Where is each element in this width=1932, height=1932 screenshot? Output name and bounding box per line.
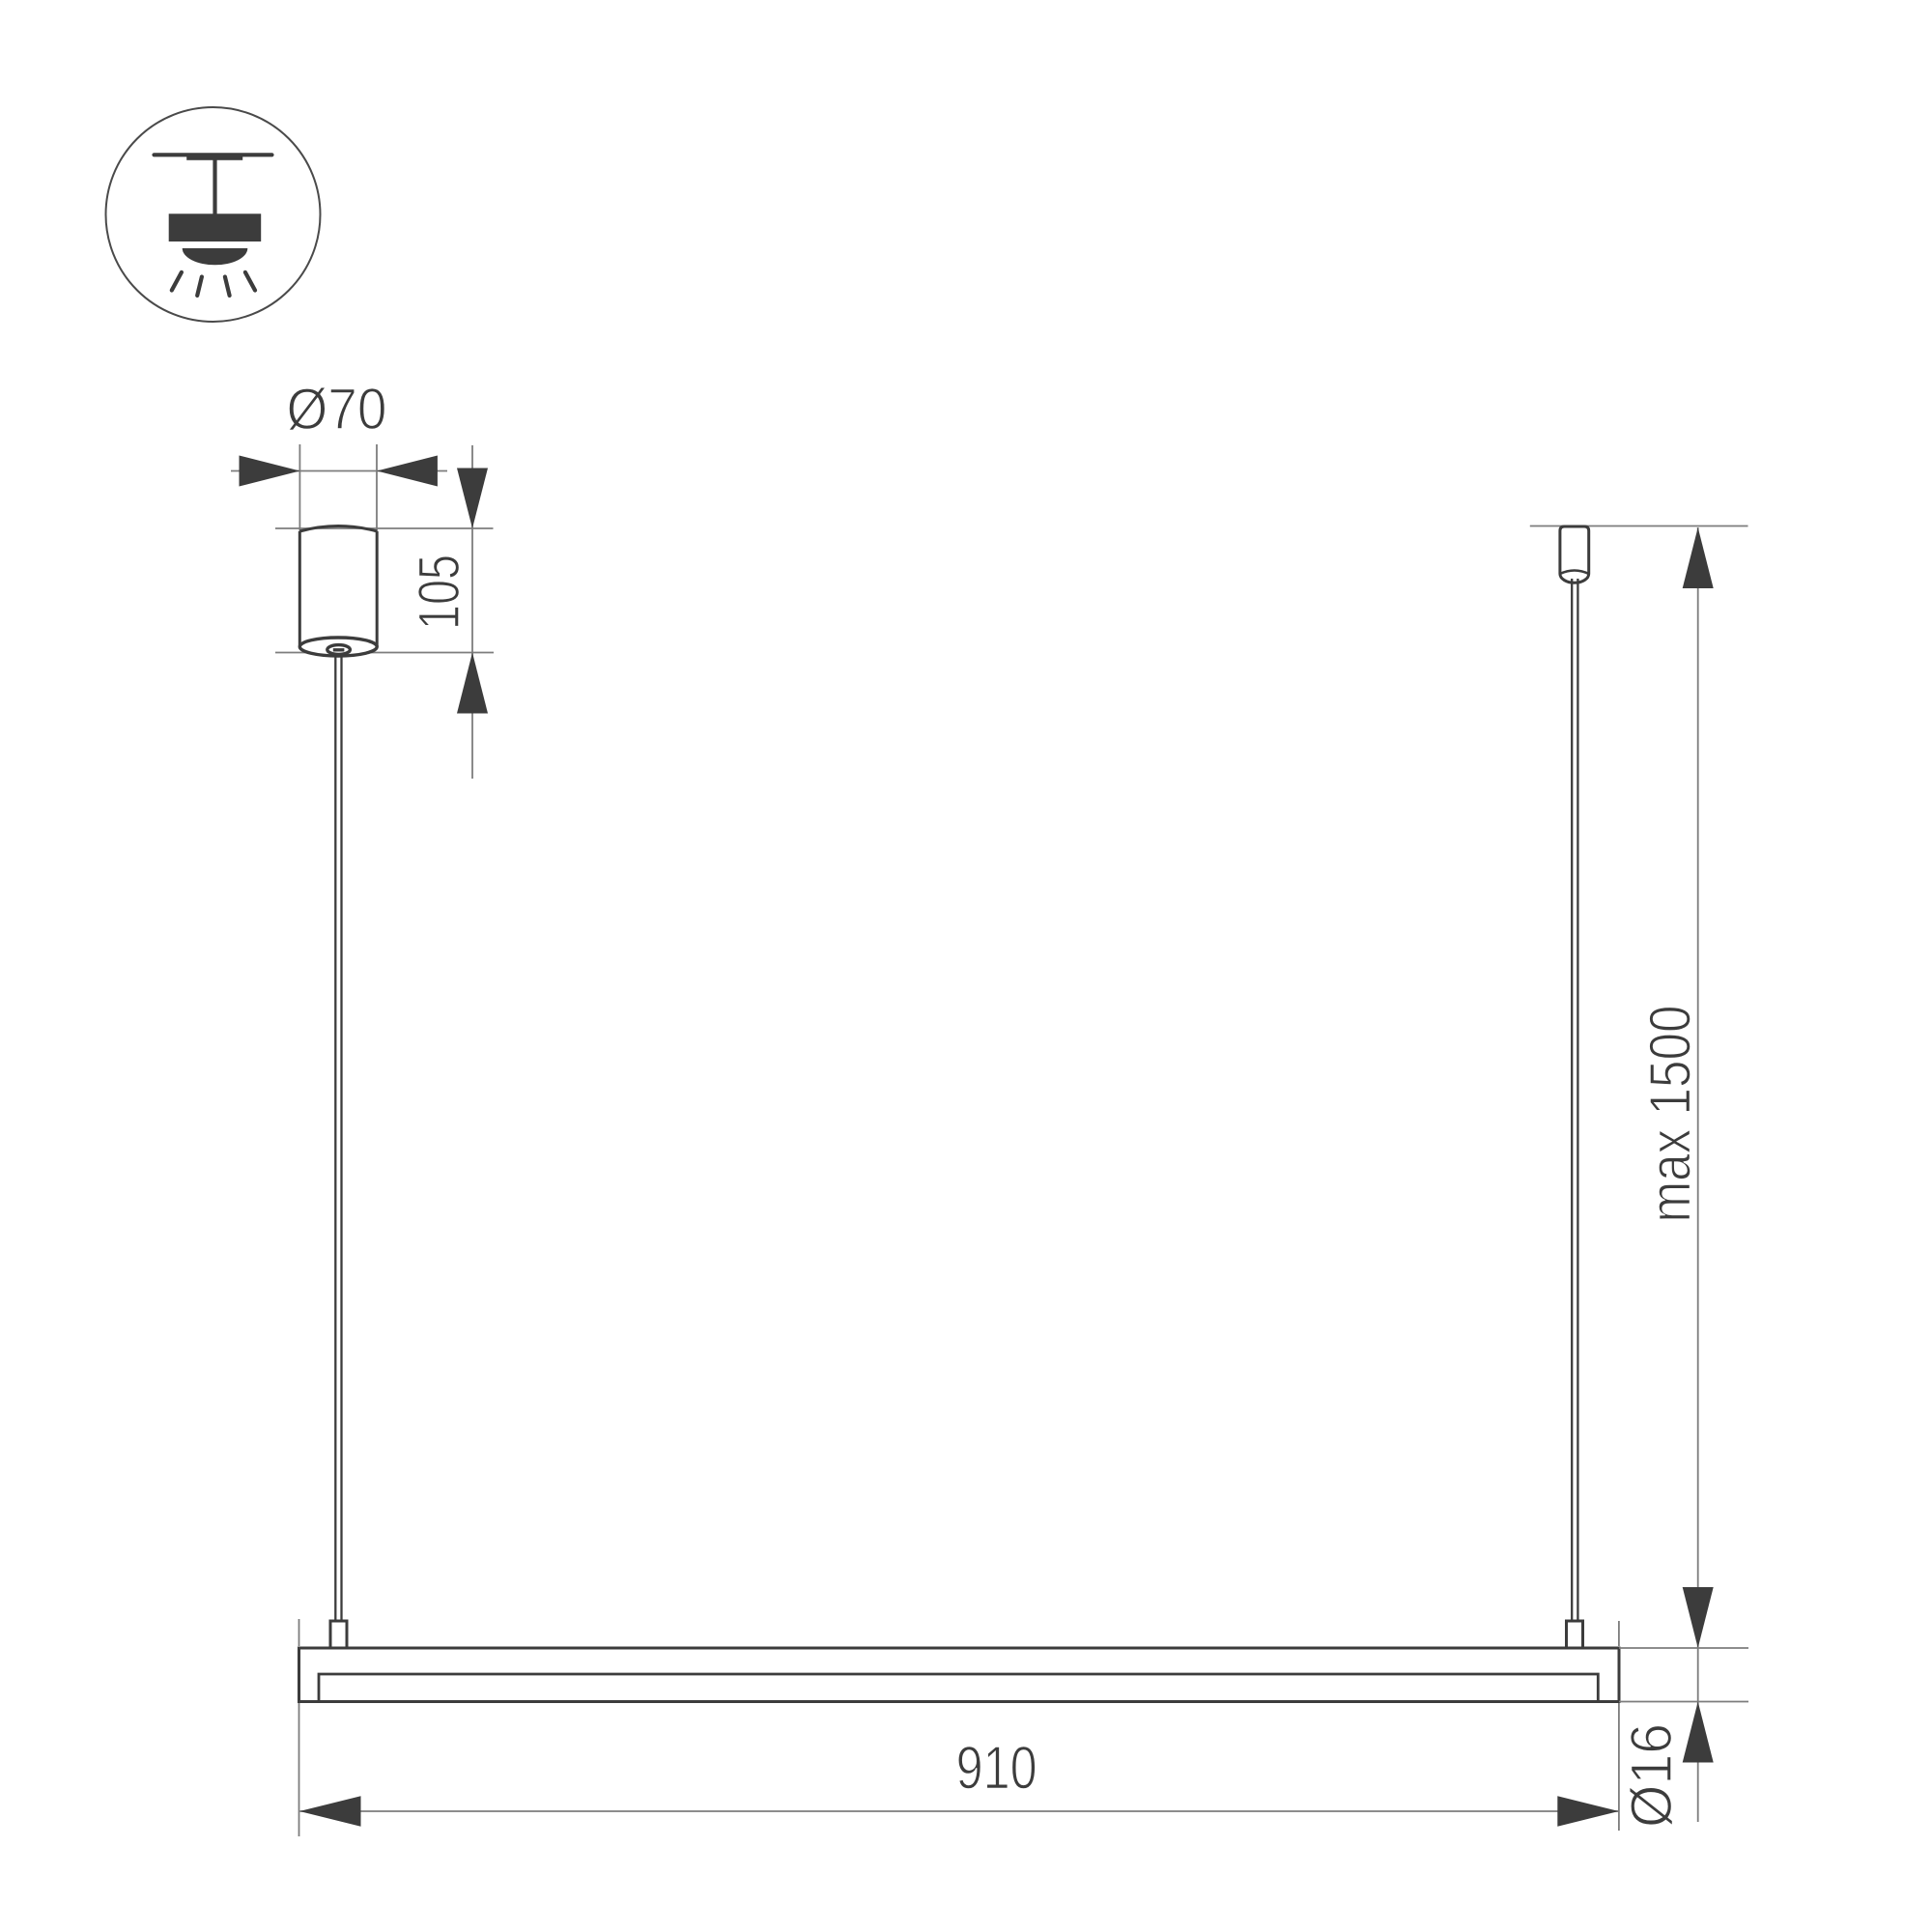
svg-text:910: 910 (956, 1735, 1037, 1803)
svg-text:Ø70: Ø70 (287, 377, 387, 441)
svg-text:105: 105 (407, 554, 471, 630)
svg-text:max 1500: max 1500 (1638, 1006, 1703, 1223)
svg-text:Ø16: Ø16 (1619, 1723, 1684, 1828)
